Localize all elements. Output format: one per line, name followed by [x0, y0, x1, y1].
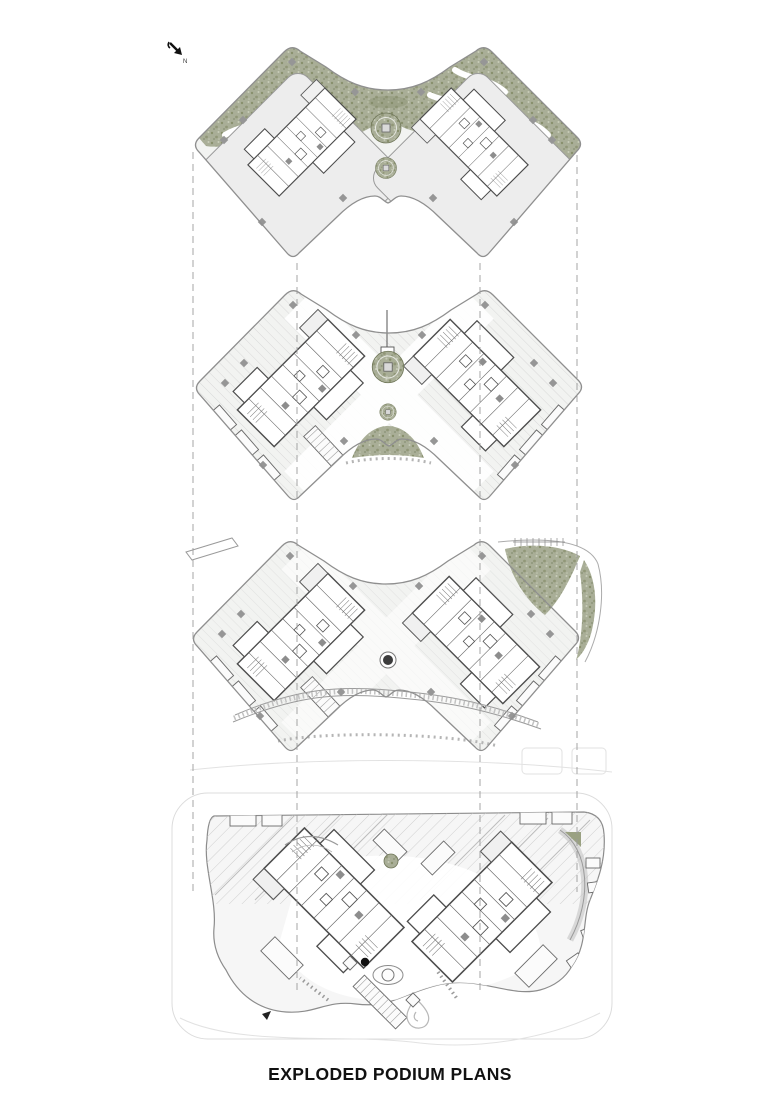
- roof-tree-planter-small: [376, 158, 397, 179]
- water-feature: [373, 966, 403, 985]
- drawing-title: EXPLODED PODIUM PLANS: [0, 1064, 780, 1085]
- north-arrow-icon: N: [168, 42, 187, 65]
- upper-podium-plan: [186, 283, 596, 513]
- roof-garden-plan: [188, 48, 589, 289]
- north-label: N: [183, 59, 187, 65]
- drawing-sheet: N: [0, 0, 780, 1103]
- mid-podium-plan: [183, 534, 602, 764]
- podium-tree-planter-small: [380, 404, 397, 421]
- tree-icon: [384, 854, 398, 868]
- ground-floor-plan: [172, 793, 612, 1045]
- podium-tree-planter: [372, 351, 404, 383]
- site-ghost-lines: [190, 748, 612, 774]
- column-marker: [361, 958, 369, 966]
- roof-tree-planter: [371, 113, 401, 143]
- ramp-outline: [186, 538, 238, 560]
